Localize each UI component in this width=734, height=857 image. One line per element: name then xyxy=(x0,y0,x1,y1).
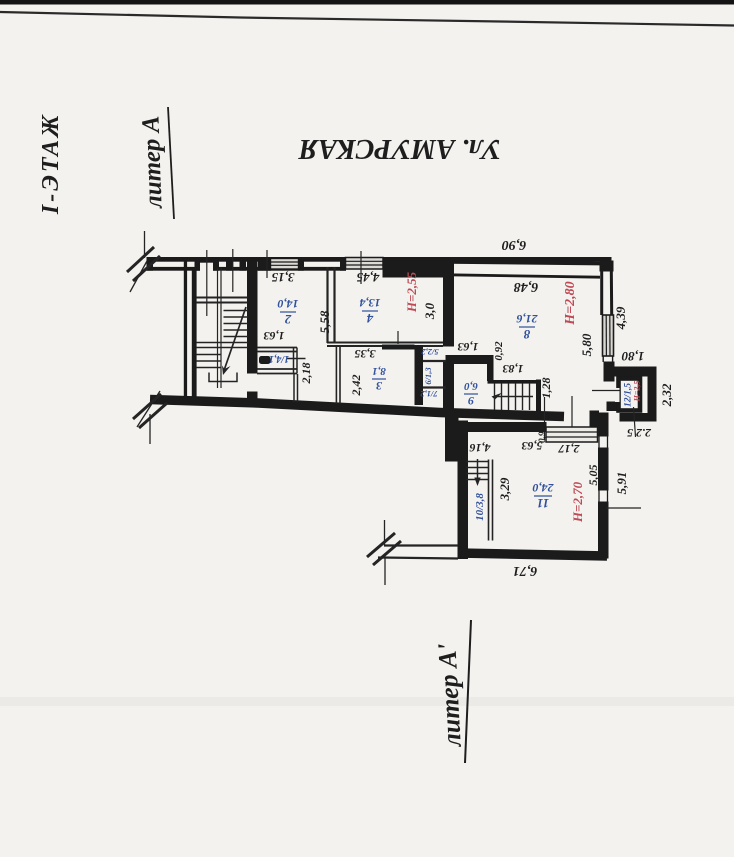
svg-text:1,28: 1,28 xyxy=(539,378,553,399)
svg-text:5,80: 5,80 xyxy=(579,333,594,356)
svg-text:Н=2,55: Н=2,55 xyxy=(404,271,419,313)
svg-text:Н=2,70: Н=2,70 xyxy=(570,481,585,523)
svg-text:6,90: 6,90 xyxy=(502,237,527,252)
svg-text:7/1,2: 7/1,2 xyxy=(420,389,438,399)
svg-text:литер А': литер А' xyxy=(432,643,466,749)
svg-text:5,05: 5,05 xyxy=(586,465,600,486)
svg-text:3,0: 3,0 xyxy=(422,302,437,320)
svg-text:6,71: 6,71 xyxy=(513,563,538,578)
svg-text:2.2 5: 2.2 5 xyxy=(627,426,652,440)
svg-text:4,16: 4,16 xyxy=(470,441,492,455)
svg-text:8,1: 8,1 xyxy=(372,365,386,377)
svg-text:3,15: 3,15 xyxy=(271,270,295,285)
svg-text:4,39: 4,39 xyxy=(613,306,628,330)
svg-text:1/4,1: 1/4,1 xyxy=(269,353,289,364)
svg-text:Н=2,80: Н=2,80 xyxy=(563,281,578,325)
svg-text:14,0: 14,0 xyxy=(278,297,299,311)
svg-text:І-ЭТАЖ: І-ЭТАЖ xyxy=(38,112,64,215)
svg-text:24,0: 24,0 xyxy=(533,481,555,495)
svg-text:Ул. АМУРСКАЯ: Ул. АМУРСКАЯ xyxy=(298,133,501,164)
svg-text:6,48: 6,48 xyxy=(514,279,539,294)
svg-text:5/2,2: 5/2,2 xyxy=(421,347,439,357)
svg-text:1,63: 1,63 xyxy=(458,340,479,354)
svg-text:5,63: 5,63 xyxy=(522,439,543,453)
svg-text:5,58: 5,58 xyxy=(317,310,332,333)
svg-text:8: 8 xyxy=(523,327,530,342)
svg-text:2,32: 2,32 xyxy=(659,383,674,407)
svg-text:4: 4 xyxy=(366,311,374,326)
svg-text:1,83: 1,83 xyxy=(503,362,524,376)
svg-text:6,0: 6,0 xyxy=(464,380,478,392)
svg-text:13,4: 13,4 xyxy=(360,296,381,310)
svg-text:10/3,8: 10/3,8 xyxy=(474,493,486,521)
svg-text:литер А: литер А xyxy=(137,115,167,209)
svg-text:3,35: 3,35 xyxy=(355,347,377,361)
svg-text:1,80: 1,80 xyxy=(621,349,644,364)
svg-text:6/1,3: 6/1,3 xyxy=(423,367,433,385)
svg-text:2,17: 2,17 xyxy=(558,442,581,456)
svg-text:4,45: 4,45 xyxy=(356,270,380,285)
svg-text:1,63: 1,63 xyxy=(264,329,285,343)
svg-text:9: 9 xyxy=(468,394,474,408)
svg-text:3: 3 xyxy=(376,379,383,393)
svg-text:5,91: 5,91 xyxy=(614,472,629,495)
svg-text:2,42: 2,42 xyxy=(349,375,363,397)
svg-text:0,92: 0,92 xyxy=(493,341,505,361)
svg-text:2,18: 2,18 xyxy=(299,363,313,385)
svg-text:3,29: 3,29 xyxy=(497,477,512,501)
svg-text:Н=2,5: Н=2,5 xyxy=(633,381,642,403)
svg-text:11: 11 xyxy=(537,496,549,511)
svg-text:2: 2 xyxy=(284,312,292,327)
svg-text:21,6: 21,6 xyxy=(517,312,539,326)
